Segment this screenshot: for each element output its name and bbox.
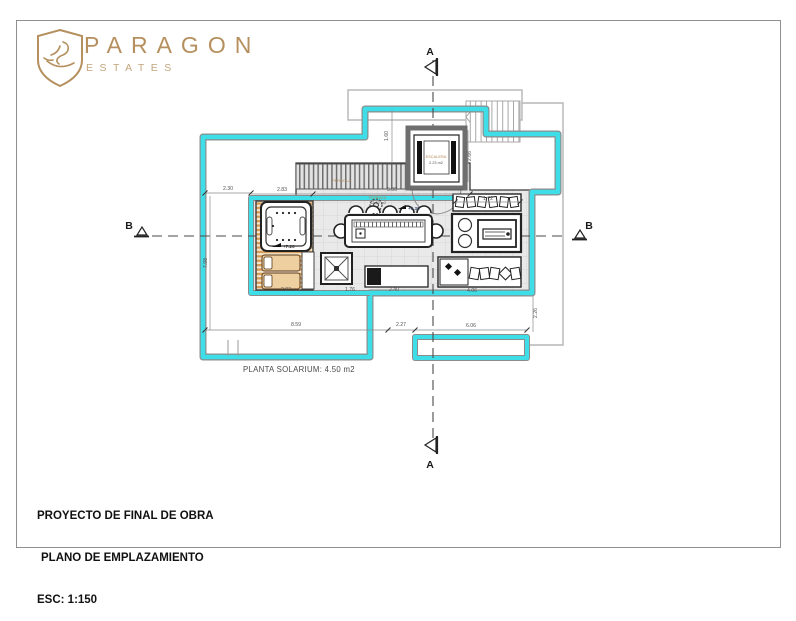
scale-label: ESC: 1:150 bbox=[37, 593, 214, 607]
console-cabinet bbox=[365, 266, 428, 287]
deck-level: +7.20 bbox=[283, 244, 295, 249]
plan-caption: PLANTA SOLARIUM: 4.50 m2 bbox=[243, 365, 355, 374]
svg-text:1.76: 1.76 bbox=[345, 287, 355, 293]
svg-text:1.60: 1.60 bbox=[384, 131, 390, 141]
section-marker-b-right: B bbox=[572, 220, 593, 240]
svg-text:A: A bbox=[426, 46, 434, 58]
stairwell-name: ESCALERA bbox=[426, 154, 447, 159]
svg-text:1.72: 1.72 bbox=[483, 196, 493, 202]
svg-text:2.26: 2.26 bbox=[533, 308, 539, 318]
svg-text:2.30: 2.30 bbox=[223, 186, 233, 192]
section-marker-a-top: A bbox=[425, 46, 437, 76]
svg-text:B: B bbox=[585, 220, 593, 232]
bench-bottom bbox=[438, 257, 521, 287]
svg-text:A: A bbox=[426, 459, 434, 471]
dining-set bbox=[334, 206, 443, 247]
skylight bbox=[321, 253, 352, 284]
svg-text:2.27: 2.27 bbox=[396, 322, 406, 328]
pergola-label: PERGOLA bbox=[332, 178, 351, 183]
outdoor-kitchen-counter bbox=[452, 214, 521, 252]
section-marker-b-left: B bbox=[125, 220, 149, 237]
section-marker-a-bottom: A bbox=[425, 436, 437, 471]
svg-text:4.06: 4.06 bbox=[467, 288, 477, 294]
svg-text:2.83: 2.83 bbox=[277, 187, 287, 193]
deck-cabinet bbox=[302, 252, 314, 289]
sink-bowl bbox=[459, 235, 472, 248]
svg-text:2.83: 2.83 bbox=[281, 287, 291, 293]
svg-text:B: B bbox=[125, 220, 133, 232]
svg-text:8.59: 8.59 bbox=[291, 322, 301, 328]
svg-text:2.40: 2.40 bbox=[389, 287, 399, 293]
project-title: PROYECTO DE FINAL DE OBRA bbox=[37, 509, 214, 523]
terrace-level: +6.30 bbox=[408, 206, 420, 211]
svg-text:5.06: 5.06 bbox=[387, 187, 397, 193]
terrace-area: 12.62 m2 bbox=[370, 200, 386, 205]
planter-box bbox=[415, 337, 527, 358]
drawing-title: PLANO DE EMPLAZAMIENTO bbox=[37, 551, 214, 565]
svg-text:7.98: 7.98 bbox=[203, 258, 209, 268]
svg-text:6.06: 6.06 bbox=[466, 323, 476, 329]
title-block: PROYECTO DE FINAL DE OBRA PLANO DE EMPLA… bbox=[37, 481, 214, 621]
stairwell-area: 2.23 m2 bbox=[429, 160, 443, 165]
sink-bowl bbox=[459, 219, 472, 232]
svg-text:2.66: 2.66 bbox=[467, 151, 473, 161]
